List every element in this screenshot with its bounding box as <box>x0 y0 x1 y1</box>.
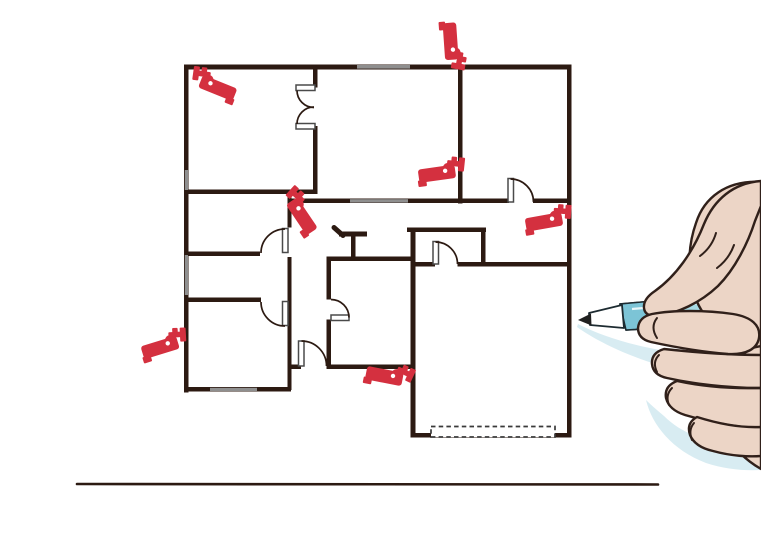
window-marker <box>185 255 188 295</box>
wall-segment <box>351 236 356 261</box>
wall-segment <box>184 252 260 257</box>
door-swing-arc <box>297 91 314 108</box>
wall-segment <box>533 199 571 204</box>
pen-point <box>578 314 592 326</box>
door-leaf <box>283 302 289 326</box>
wall-segment <box>313 126 318 194</box>
cctv-camera-icon <box>189 66 241 106</box>
door-leaf <box>299 341 305 366</box>
door-leaf <box>331 315 349 321</box>
wall-segment <box>567 65 572 438</box>
wall-segment <box>458 65 463 204</box>
ground-line-layer <box>77 484 658 485</box>
window-marker <box>185 170 188 190</box>
hand-holding-pen <box>577 181 761 470</box>
cctv-camera-icon <box>414 153 465 192</box>
pen-cone <box>589 305 624 328</box>
wall-segment <box>411 262 436 267</box>
door-leaf <box>433 242 439 265</box>
wall-segment-diagonal <box>334 228 343 236</box>
wall-segment <box>458 262 572 267</box>
garage-door-dashed-marker <box>431 427 555 438</box>
ground-line <box>77 484 658 485</box>
window-marker <box>350 199 408 202</box>
wall-segment <box>313 65 318 88</box>
door-swing-arc <box>297 107 314 124</box>
cctv-camera-icon <box>359 350 416 401</box>
cctv-camera-icon <box>431 18 473 71</box>
door-swing-arc <box>302 341 327 366</box>
illustration-canvas <box>0 0 761 548</box>
window-marker <box>210 388 257 391</box>
wall-segment <box>184 298 261 303</box>
door-swing-arc <box>261 229 285 253</box>
wall-segment <box>327 257 332 300</box>
door-leaf <box>296 85 315 91</box>
wall-segment <box>481 228 486 267</box>
cctv-camera-icon <box>522 202 572 239</box>
cctv-camera-icon <box>138 327 187 363</box>
middle-finger <box>652 349 761 388</box>
window-marker <box>357 65 410 69</box>
wall-segment <box>407 228 486 233</box>
door-leaf <box>508 179 514 203</box>
wall-segment <box>327 320 332 370</box>
wall-segment <box>327 257 415 262</box>
door-leaf <box>283 229 289 253</box>
wall-segment <box>411 228 416 438</box>
door-swing-arc <box>261 302 285 326</box>
door-leaf <box>296 124 315 130</box>
camera-icons-layer <box>138 18 572 401</box>
wall-segment <box>184 65 189 393</box>
